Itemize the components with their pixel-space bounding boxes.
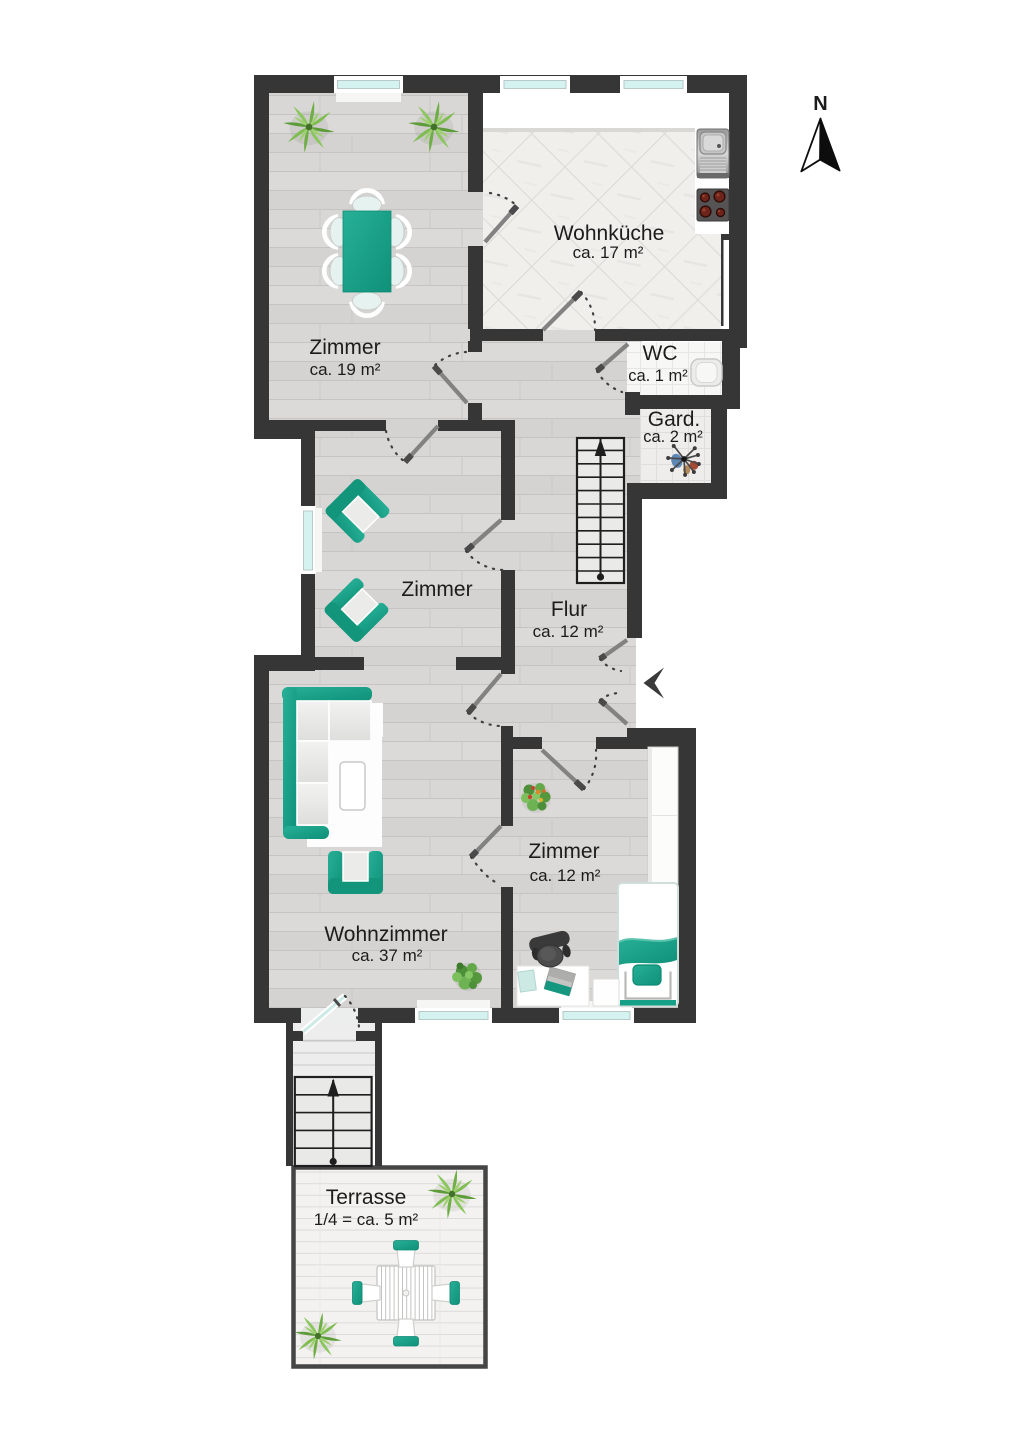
svg-text:Zimmer: Zimmer	[309, 336, 380, 359]
svg-text:ca. 12 m²: ca. 12 m²	[530, 866, 601, 885]
svg-text:Wohnzimmer: Wohnzimmer	[324, 923, 447, 946]
svg-text:1/4 = ca. 5 m²: 1/4 = ca. 5 m²	[314, 1210, 419, 1229]
svg-text:Flur: Flur	[551, 598, 587, 621]
svg-text:ca. 12 m²: ca. 12 m²	[533, 622, 604, 641]
svg-text:Zimmer: Zimmer	[401, 578, 472, 601]
svg-text:ca. 17 m²: ca. 17 m²	[573, 243, 644, 262]
svg-text:N: N	[813, 93, 827, 115]
svg-text:Wohnküche: Wohnküche	[554, 222, 665, 245]
svg-text:Terrasse: Terrasse	[326, 1186, 407, 1209]
svg-text:ca. 2 m²: ca. 2 m²	[643, 428, 703, 446]
svg-text:ca. 19 m²: ca. 19 m²	[310, 360, 381, 379]
svg-text:Zimmer: Zimmer	[528, 840, 599, 863]
svg-text:ca. 37 m²: ca. 37 m²	[352, 946, 423, 965]
svg-text:WC: WC	[643, 342, 678, 365]
svg-text:ca. 1 m²: ca. 1 m²	[628, 367, 688, 385]
